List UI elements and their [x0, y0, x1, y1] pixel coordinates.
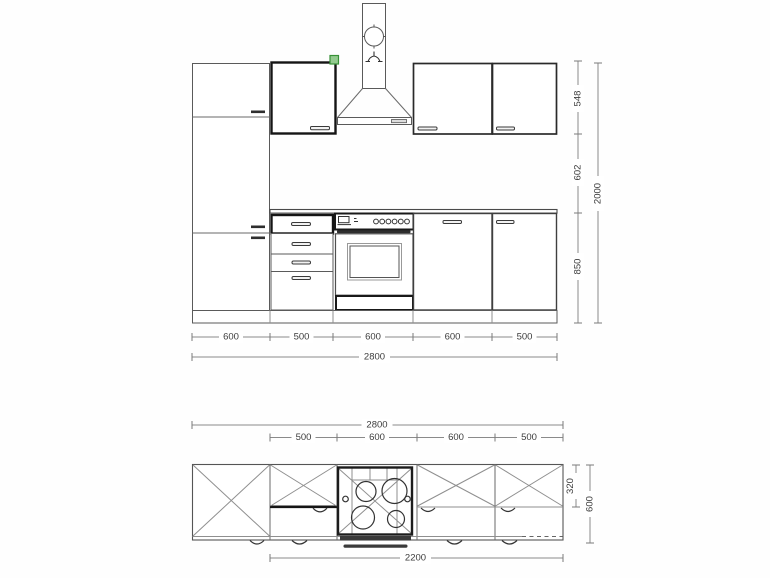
front-elevation: 600 500 600 600 500 2800 548 602 850	[192, 4, 605, 364]
plan-front-handle-tall	[250, 541, 264, 545]
dim-label-front-seg-4: 600	[445, 332, 461, 343]
handle	[443, 221, 462, 224]
dim-plan-total-width: 2800	[192, 419, 563, 431]
extractor-hood[interactable]	[338, 4, 412, 125]
dim-label-run-width: 2200	[405, 553, 426, 564]
plinth	[193, 311, 558, 324]
dim-front-total-height: 2000	[592, 63, 605, 323]
dim-label-plan-total: 2800	[366, 420, 387, 431]
wall-cabinet-600[interactable]	[414, 64, 493, 135]
plan-front-handle-drawer	[292, 541, 307, 545]
handle-top-door	[251, 111, 265, 114]
plan-front-handle-dishwasher	[447, 541, 462, 545]
handle-mid-door	[251, 226, 265, 229]
wall-cabinet-500[interactable]	[493, 64, 557, 135]
dim-label-plan-seg-1: 500	[296, 432, 312, 443]
drawer-handle-1	[292, 223, 311, 226]
drawer-base-cabinet[interactable]	[271, 215, 333, 310]
hood-filter	[392, 120, 407, 123]
handle	[418, 127, 437, 130]
dim-label-front-seg-1: 600	[223, 332, 239, 343]
dishwasher[interactable]	[414, 214, 493, 311]
selection-handle-icon[interactable]	[330, 56, 339, 65]
wall-cabinet-selected[interactable]	[272, 56, 339, 134]
base-cabinet-500[interactable]	[493, 214, 557, 311]
handle-bottom-door	[251, 237, 265, 240]
plan-view: 2800 500 600 600 500	[192, 419, 597, 564]
dim-front-heights: 548 602 850	[572, 61, 585, 323]
dim-label-total-depth: 600	[585, 496, 596, 512]
dim-label-total-height: 2000	[593, 183, 604, 204]
dim-label-mid-gap: 602	[573, 165, 584, 181]
handle	[311, 127, 330, 130]
dim-label-wall-height: 548	[573, 91, 584, 107]
planner-drawing-canvas: 600 500 600 600 500 2800 548 602 850	[0, 0, 770, 578]
dim-plan-depths: 320 600	[564, 465, 597, 543]
plan-oven-front	[340, 536, 411, 541]
dim-label-plan-seg-2: 600	[369, 432, 385, 443]
drawer-handle-2	[292, 243, 311, 246]
plan-cabinet-run	[193, 465, 564, 548]
dim-plan-run: 2200	[270, 552, 563, 564]
dim-label-front-seg-2: 500	[294, 332, 310, 343]
cabinet-tall-fridge[interactable]	[193, 64, 270, 311]
dim-front-total-width: 2800	[192, 351, 557, 363]
dim-label-front-seg-5: 500	[517, 332, 533, 343]
dim-label-wall-depth: 320	[565, 478, 576, 494]
dim-label-front-total: 2800	[364, 352, 385, 363]
kitchen-technical-drawing: 600 500 600 600 500 2800 548 602 850	[0, 0, 770, 578]
drawer-handle-4	[292, 277, 311, 280]
oven-handle	[337, 230, 411, 233]
dim-label-plan-seg-3: 600	[448, 432, 464, 443]
dim-label-base-height: 850	[573, 259, 584, 275]
dim-front-widths: 600 500 600 600 500	[192, 331, 557, 343]
oven-bottom-drawer[interactable]	[336, 296, 413, 310]
dim-plan-widths: 500 600 600 500	[270, 432, 563, 444]
handle	[497, 127, 515, 130]
handle	[497, 221, 515, 224]
plan-oven-handle	[344, 545, 408, 548]
oven[interactable]	[335, 214, 414, 311]
drawer-handle-3	[292, 261, 311, 264]
dim-label-plan-seg-4: 500	[521, 432, 537, 443]
plan-front-handle-base500	[502, 541, 517, 545]
dim-label-front-seg-3: 600	[365, 332, 381, 343]
